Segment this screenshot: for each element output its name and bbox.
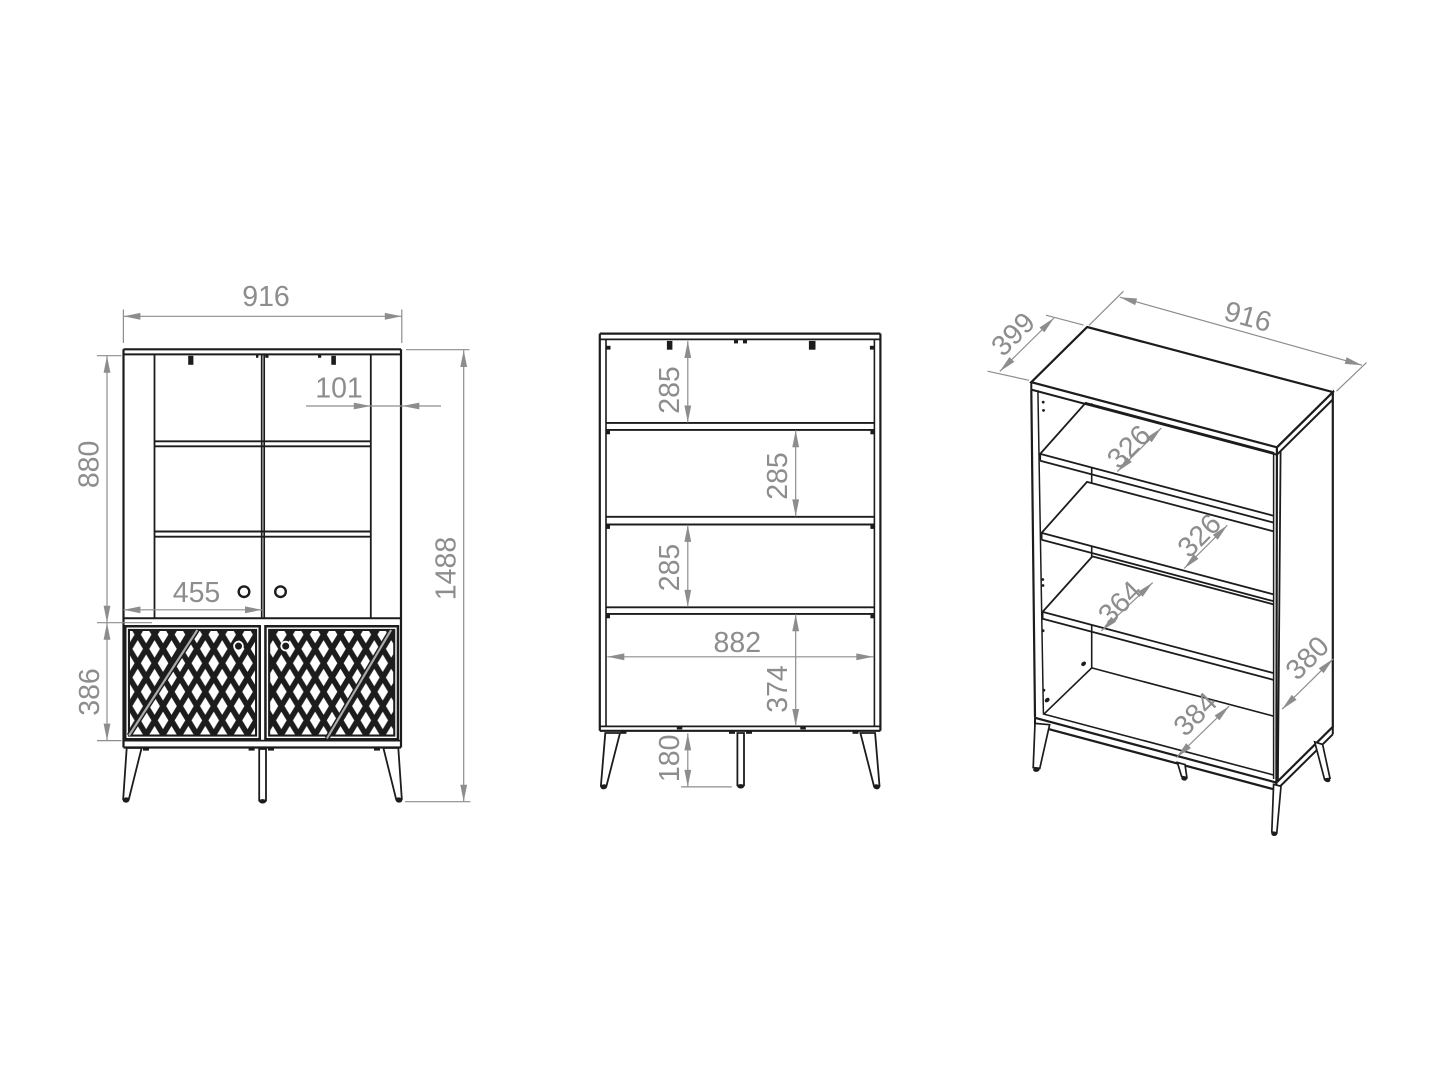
- svg-text:285: 285: [762, 452, 794, 500]
- svg-text:180: 180: [654, 735, 686, 783]
- svg-text:374: 374: [762, 665, 794, 713]
- svg-text:101: 101: [315, 373, 363, 405]
- svg-text:386: 386: [74, 668, 106, 716]
- svg-text:882: 882: [714, 627, 762, 659]
- svg-text:880: 880: [73, 441, 105, 489]
- svg-text:285: 285: [654, 366, 686, 414]
- svg-text:1488: 1488: [430, 537, 462, 600]
- svg-text:285: 285: [654, 544, 686, 592]
- svg-text:455: 455: [173, 577, 221, 609]
- svg-text:916: 916: [242, 281, 290, 313]
